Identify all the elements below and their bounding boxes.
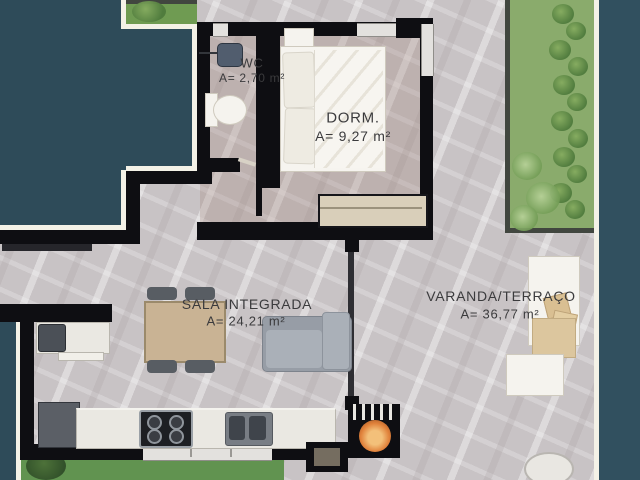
dorm-door-leaf (256, 186, 262, 216)
plant-icon (568, 57, 588, 76)
room-area-varanda: A= 36,77 m² (461, 307, 540, 322)
plant-icon (568, 129, 588, 148)
wall-sala-top-left (0, 230, 140, 244)
sink-basin (249, 416, 266, 440)
stove-burner (169, 415, 184, 430)
stove-burner (169, 429, 184, 444)
plant-icon (551, 111, 573, 131)
plant-icon (549, 40, 571, 60)
grill-rod (389, 404, 392, 420)
statue (524, 452, 574, 480)
plant-icon (565, 200, 585, 219)
room-area-dorm: A= 9,27 m² (315, 128, 391, 144)
sink-basin (229, 416, 245, 440)
wall-kitchen-top (0, 304, 112, 322)
wall-step-horizontal (128, 171, 212, 184)
toilet (213, 95, 247, 125)
washbasin (217, 43, 243, 67)
wall-kitchen-left (20, 322, 34, 448)
nightstand (284, 28, 314, 48)
plant-icon (566, 22, 586, 40)
fern-icon (512, 152, 542, 180)
faucet-icon (199, 52, 218, 54)
window-top-wc (213, 23, 228, 37)
exterior-area-top-left (0, 0, 126, 230)
grill-rod (380, 404, 383, 420)
lot-outline (121, 24, 197, 29)
room-label-dorm: DORM. (326, 110, 380, 127)
wall-wc-bottom (197, 158, 240, 172)
exterior-area-step (126, 28, 196, 170)
grill-rod (353, 404, 356, 420)
plant-icon (553, 75, 575, 95)
lounge-towel (532, 318, 576, 358)
window-pane-divider (190, 448, 192, 457)
window-dorm-right (421, 24, 434, 76)
plant-icon (553, 147, 575, 167)
kitchen-appliance (38, 324, 66, 352)
room-label-varanda: VARANDA/TERRAÇO (426, 288, 575, 304)
side-garden-edge-left (505, 0, 510, 233)
floor-plan: WC A= 2,70 m² DORM. A= 9,27 m² SALA INTE… (0, 0, 640, 480)
dining-chair (147, 360, 177, 373)
exterior-area-left-strip (0, 322, 16, 480)
grill-rod (371, 404, 374, 420)
stove-burner (147, 415, 162, 430)
stove-burner (147, 429, 162, 444)
fire-icon (359, 420, 391, 452)
grill-cabinet-front (314, 448, 340, 466)
plant-icon (567, 165, 587, 183)
side-table (506, 354, 564, 396)
kitchen-counter-bottom (76, 408, 336, 449)
dining-chair (185, 360, 215, 373)
plant-icon (132, 1, 166, 22)
stove (139, 410, 193, 448)
sliding-door-post (345, 238, 359, 252)
room-label-sala: SALA INTEGRADA (182, 296, 312, 312)
room-area-sala: A= 24,21 m² (207, 314, 286, 329)
pillow (282, 51, 316, 108)
fern-icon (510, 205, 538, 231)
fridge (38, 402, 80, 448)
window-pane-divider (230, 448, 232, 457)
wardrobe (318, 194, 428, 228)
wall-wc-dorm-divider (256, 22, 280, 188)
plant-icon (552, 4, 574, 24)
kitchen-shelf (58, 352, 104, 361)
wardrobe-door-line (320, 207, 422, 209)
pillow (283, 107, 317, 164)
lot-outline (121, 0, 126, 26)
dining-chair (147, 287, 177, 300)
window-top-dorm (357, 23, 396, 37)
grill-rod (362, 404, 365, 420)
exterior-area-right-strip (599, 0, 640, 480)
room-area-wc: A= 2,70 m² (219, 71, 285, 85)
sofa-chaise (322, 312, 350, 370)
plant-icon (567, 93, 587, 111)
room-label-wc: WC (240, 56, 263, 71)
lot-outline (594, 0, 599, 480)
console-shelf (2, 244, 92, 251)
sofa-seat (266, 330, 322, 368)
